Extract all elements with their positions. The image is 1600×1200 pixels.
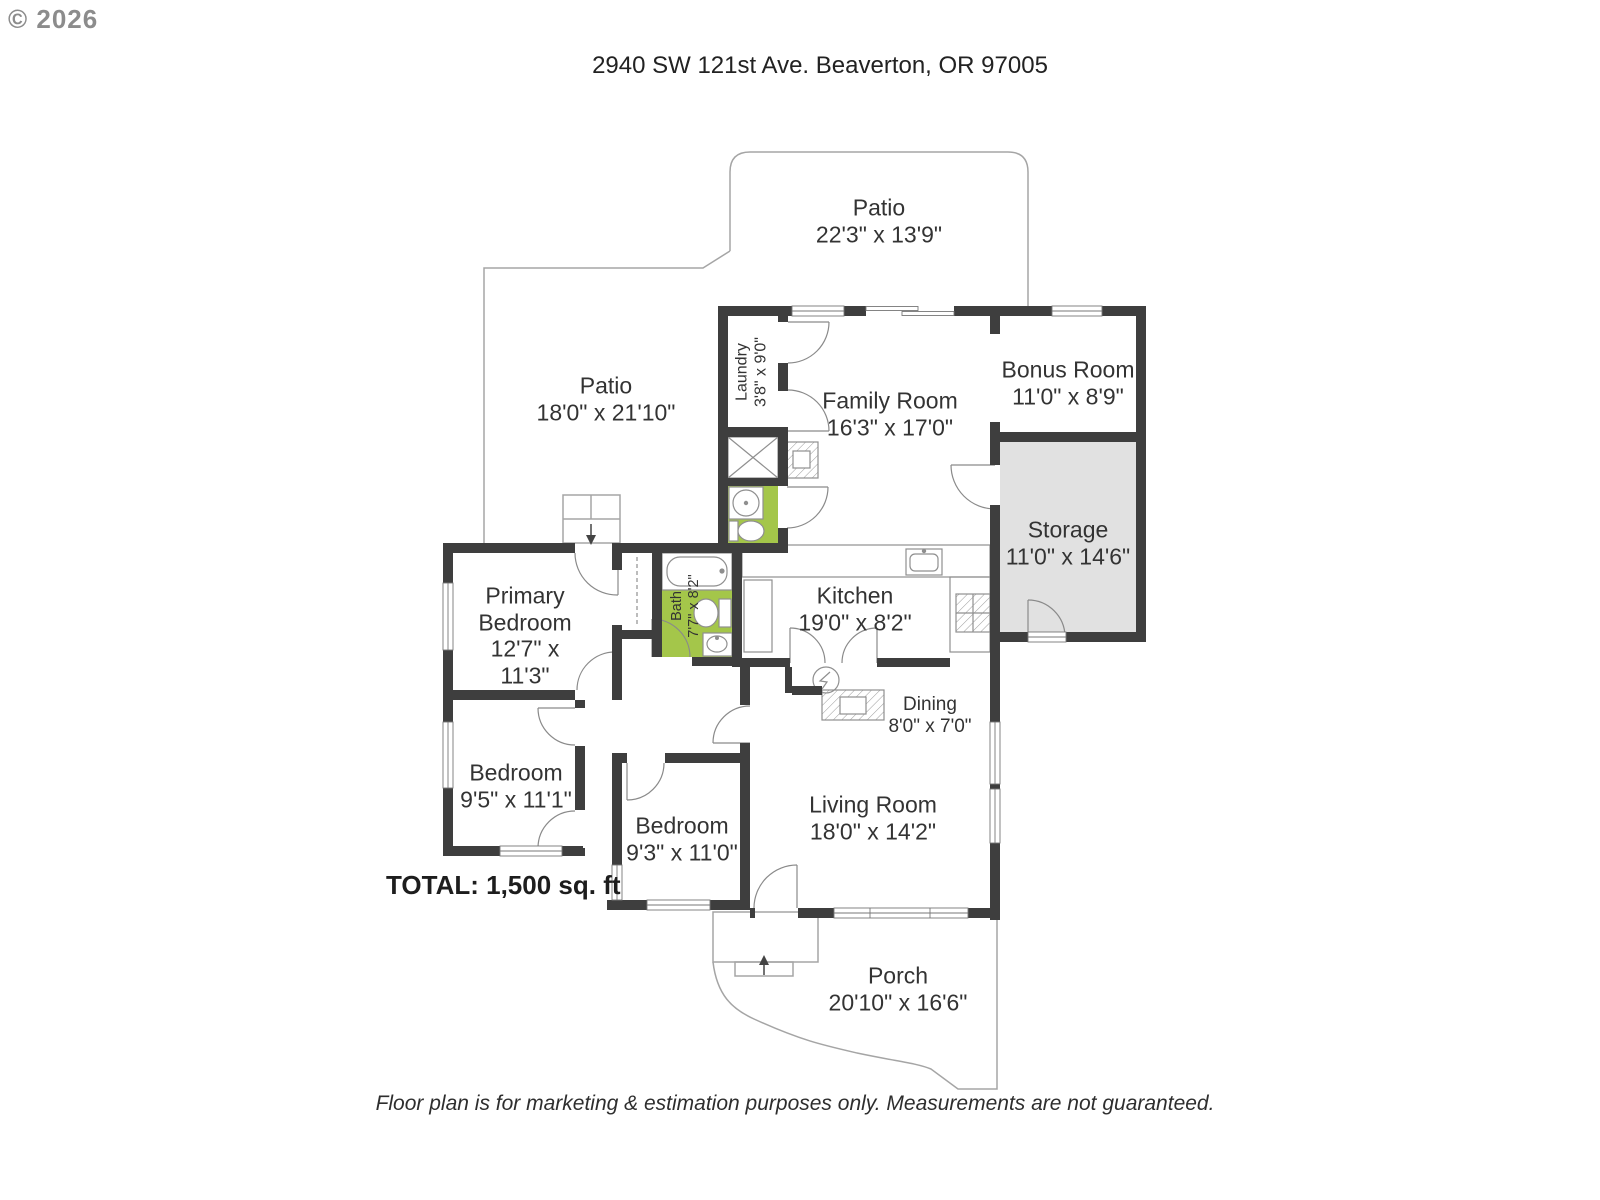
room-label-kitchen: Kitchen 19'0" x 8'2" [798, 582, 911, 635]
window [990, 789, 1000, 843]
room-name: Primary Bedroom [463, 583, 587, 636]
buffet-builtin [822, 690, 884, 720]
room-label-patio-left: Patio 18'0" x 21'10" [537, 372, 676, 425]
half-bath-sink [729, 487, 763, 519]
room-name: Porch [829, 962, 968, 989]
porch-steps [735, 955, 793, 976]
window [792, 306, 844, 316]
room-name: Storage [1006, 516, 1130, 543]
window [500, 846, 562, 856]
room-label-laundry: Laundry 3'8" x 9'0" [733, 337, 770, 407]
window [647, 900, 710, 910]
window [443, 722, 453, 788]
room-label-family-room: Family Room 16'3" x 17'0" [822, 387, 957, 440]
room-label-porch: Porch 20'10" x 16'6" [829, 962, 968, 1015]
kitchen-sink [906, 549, 942, 575]
room-label-storage: Storage 11'0" x 14'6" [1006, 516, 1130, 569]
room-name: Bedroom [460, 759, 572, 786]
room-dims: 19'0" x 8'2" [798, 609, 911, 636]
room-name: Patio [537, 372, 676, 399]
room-dims: 18'0" x 14'2" [809, 818, 937, 845]
door-threshold [1028, 632, 1066, 642]
patio-steps [563, 495, 620, 545]
bath-sink [703, 633, 732, 656]
room-label-bedroom-2: Bedroom 9'3" x 11'0" [626, 812, 738, 865]
room-label-bonus-room: Bonus Room 11'0" x 8'9" [1002, 356, 1135, 409]
room-dims: 22'3" x 13'9" [816, 221, 942, 248]
room-label-patio-top: Patio 22'3" x 13'9" [816, 194, 942, 247]
total-area-label: TOTAL: 1,500 sq. ft [386, 870, 621, 901]
washer-dryer-space [721, 437, 779, 478]
room-label-bath: Bath 7'7" x 8'2" [669, 574, 703, 637]
room-dims: 8'0" x 7'0" [888, 716, 971, 738]
window [834, 908, 968, 918]
room-dims: 9'3" x 11'0" [626, 839, 738, 866]
room-dims: 9'5" x 11'1" [460, 786, 572, 813]
window [990, 722, 1000, 784]
room-dims: 11'0" x 14'6" [1006, 543, 1130, 570]
room-dims: 12'7" x 11'3" [463, 636, 587, 689]
room-label-primary-bedroom: Primary Bedroom 12'7" x 11'3" [463, 583, 587, 690]
room-name: Kitchen [798, 582, 911, 609]
room-name: Patio [816, 194, 942, 221]
room-name: Living Room [809, 791, 937, 818]
window [1052, 306, 1102, 316]
room-label-bedroom-1: Bedroom 9'5" x 11'1" [460, 759, 572, 812]
room-label-living-room: Living Room 18'0" x 14'2" [809, 791, 937, 844]
room-name: Laundry [733, 337, 752, 407]
room-dims: 7'7" x 8'2" [686, 574, 703, 637]
room-dims: 16'3" x 17'0" [822, 414, 957, 441]
room-dims: 11'0" x 8'9" [1002, 383, 1135, 410]
room-dims: 20'10" x 16'6" [829, 989, 968, 1016]
room-name: Family Room [822, 387, 957, 414]
refrigerator [744, 580, 772, 652]
room-dims: 3'8" x 9'0" [752, 337, 771, 407]
room-label-dining: Dining 8'0" x 7'0" [888, 694, 971, 738]
floor-plan-page: © 2026 2940 SW 121st Ave. Beaverton, OR … [0, 0, 1600, 1200]
half-bath-toilet [729, 521, 764, 541]
window [443, 583, 453, 650]
stove [956, 594, 990, 632]
room-dims: 18'0" x 21'10" [537, 399, 676, 426]
room-name: Bonus Room [1002, 356, 1135, 383]
room-name: Dining [888, 694, 971, 716]
room-name: Bedroom [626, 812, 738, 839]
sliding-patio-door [866, 306, 954, 316]
fireplace [786, 442, 818, 478]
disclaimer-text: Floor plan is for marketing & estimation… [376, 1092, 1215, 1116]
room-name: Bath [669, 574, 686, 637]
